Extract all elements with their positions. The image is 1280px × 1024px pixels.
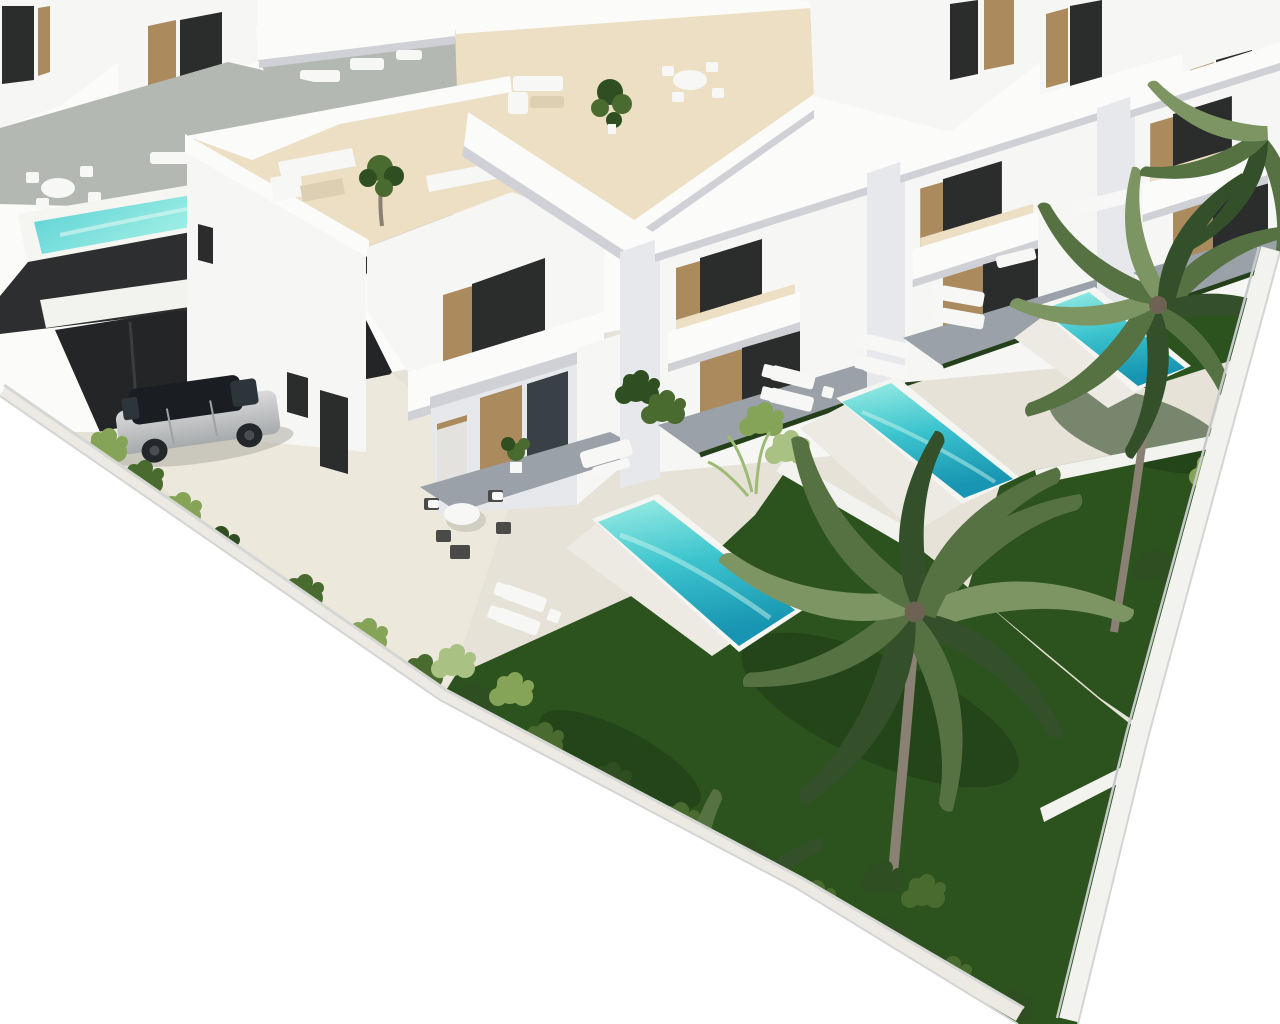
window-glass [2,6,34,84]
window-glass [950,0,978,80]
window-glass [1070,0,1102,86]
dining-table [444,503,480,525]
car-rear-glass [121,397,140,421]
villa-development-render [0,0,1280,1024]
window-wood-frame [38,6,50,76]
side-window [287,372,308,418]
window-wood-frame [1046,8,1068,88]
render-canvas [0,0,1280,1024]
side-door-window [320,390,348,474]
side-window [198,224,213,264]
window-wood-frame [984,0,1014,70]
car-windshield [230,378,259,407]
